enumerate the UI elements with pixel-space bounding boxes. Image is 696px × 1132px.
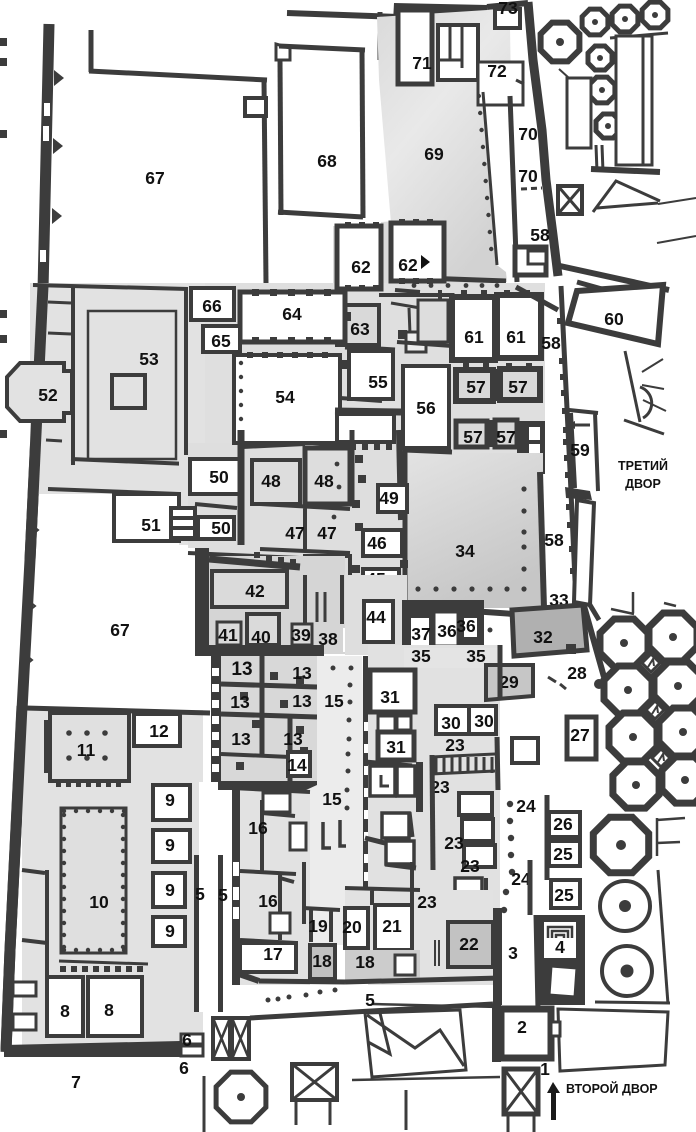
svg-text:13: 13	[292, 691, 312, 711]
svg-text:11: 11	[77, 740, 96, 760]
svg-text:23: 23	[460, 856, 480, 876]
svg-text:60: 60	[604, 309, 624, 329]
svg-text:34: 34	[455, 541, 475, 561]
svg-text:36: 36	[437, 621, 457, 641]
svg-text:39: 39	[291, 625, 311, 645]
svg-text:57: 57	[463, 427, 482, 447]
svg-text:48: 48	[314, 471, 334, 491]
svg-text:16: 16	[248, 818, 268, 838]
svg-text:9: 9	[165, 921, 175, 941]
svg-text:5: 5	[195, 884, 205, 904]
svg-text:48: 48	[261, 471, 281, 491]
svg-text:23: 23	[417, 892, 437, 912]
svg-text:51: 51	[141, 515, 161, 535]
svg-text:32: 32	[533, 627, 553, 647]
svg-text:4: 4	[555, 937, 565, 957]
svg-text:8: 8	[104, 1000, 114, 1020]
svg-text:2: 2	[517, 1017, 527, 1037]
svg-text:58: 58	[544, 530, 564, 550]
svg-text:13: 13	[231, 659, 252, 680]
svg-text:67: 67	[145, 168, 164, 188]
svg-text:57: 57	[496, 427, 515, 447]
svg-text:71: 71	[412, 53, 432, 73]
svg-text:62: 62	[351, 257, 371, 277]
svg-text:12: 12	[149, 721, 169, 741]
svg-text:69: 69	[424, 144, 444, 164]
svg-text:5: 5	[218, 885, 228, 905]
svg-text:9: 9	[165, 835, 175, 855]
svg-text:18: 18	[312, 951, 332, 971]
svg-text:53: 53	[139, 349, 159, 369]
svg-text:30: 30	[441, 713, 461, 733]
svg-text:73: 73	[498, 0, 518, 18]
svg-text:ДВОР: ДВОР	[625, 477, 661, 491]
svg-text:64: 64	[282, 304, 302, 324]
svg-text:18: 18	[355, 952, 375, 972]
svg-text:9: 9	[165, 880, 175, 900]
svg-text:23: 23	[445, 735, 465, 755]
svg-text:62: 62	[398, 255, 418, 275]
svg-text:61: 61	[464, 327, 484, 347]
svg-text:57: 57	[466, 377, 485, 397]
svg-text:26: 26	[553, 814, 573, 834]
svg-text:6: 6	[182, 1030, 192, 1050]
svg-text:13: 13	[283, 729, 303, 749]
svg-text:55: 55	[368, 372, 388, 392]
svg-text:27: 27	[570, 725, 589, 745]
svg-text:28: 28	[567, 663, 587, 683]
svg-text:31: 31	[386, 737, 406, 757]
svg-text:68: 68	[317, 151, 337, 171]
svg-text:40: 40	[251, 627, 271, 647]
svg-text:23: 23	[444, 833, 464, 853]
svg-text:52: 52	[38, 385, 58, 405]
svg-text:7: 7	[71, 1072, 81, 1092]
svg-text:70: 70	[518, 166, 538, 186]
svg-text:21: 21	[382, 916, 402, 936]
svg-text:8: 8	[60, 1001, 70, 1021]
svg-text:15: 15	[324, 691, 344, 711]
svg-text:50: 50	[211, 518, 231, 538]
svg-text:9: 9	[165, 790, 175, 810]
svg-text:5: 5	[365, 990, 375, 1010]
svg-text:49: 49	[379, 488, 399, 508]
svg-text:58: 58	[541, 333, 561, 353]
svg-text:19: 19	[308, 916, 328, 936]
svg-text:70: 70	[518, 124, 538, 144]
svg-text:41: 41	[218, 625, 238, 645]
svg-text:44: 44	[366, 607, 386, 627]
svg-text:16: 16	[258, 891, 278, 911]
svg-text:65: 65	[211, 331, 231, 351]
svg-text:61: 61	[506, 327, 526, 347]
svg-text:56: 56	[416, 398, 436, 418]
svg-text:37: 37	[411, 624, 430, 644]
svg-text:ВТОРОЙ ДВОР: ВТОРОЙ ДВОР	[566, 1081, 658, 1096]
svg-text:31: 31	[380, 687, 400, 707]
svg-text:13: 13	[292, 663, 312, 683]
svg-text:47: 47	[285, 523, 304, 543]
svg-text:13: 13	[230, 692, 250, 712]
svg-text:13: 13	[231, 729, 251, 749]
svg-text:57: 57	[508, 377, 527, 397]
svg-text:35: 35	[411, 646, 431, 666]
svg-text:50: 50	[209, 467, 229, 487]
svg-text:36: 36	[456, 616, 476, 636]
svg-text:30: 30	[474, 711, 494, 731]
svg-text:6: 6	[179, 1058, 189, 1078]
svg-text:20: 20	[342, 917, 362, 937]
svg-text:66: 66	[202, 296, 222, 316]
svg-text:59: 59	[570, 440, 590, 460]
svg-text:22: 22	[459, 934, 479, 954]
svg-text:42: 42	[245, 581, 265, 601]
svg-text:54: 54	[275, 387, 295, 407]
svg-text:17: 17	[263, 944, 282, 964]
svg-text:47: 47	[317, 523, 336, 543]
svg-text:15: 15	[322, 789, 342, 809]
svg-text:67: 67	[110, 620, 129, 640]
svg-text:1: 1	[540, 1059, 550, 1079]
svg-text:35: 35	[466, 646, 486, 666]
svg-text:46: 46	[367, 533, 387, 553]
svg-text:ТРЕТИЙ: ТРЕТИЙ	[618, 458, 668, 473]
svg-text:72: 72	[487, 61, 507, 81]
svg-text:25: 25	[553, 844, 573, 864]
svg-text:14: 14	[287, 755, 307, 775]
svg-text:63: 63	[350, 319, 370, 339]
svg-text:58: 58	[530, 225, 550, 245]
svg-text:24: 24	[516, 796, 536, 816]
svg-text:3: 3	[508, 943, 518, 963]
svg-text:25: 25	[554, 885, 574, 905]
svg-text:10: 10	[89, 892, 109, 912]
